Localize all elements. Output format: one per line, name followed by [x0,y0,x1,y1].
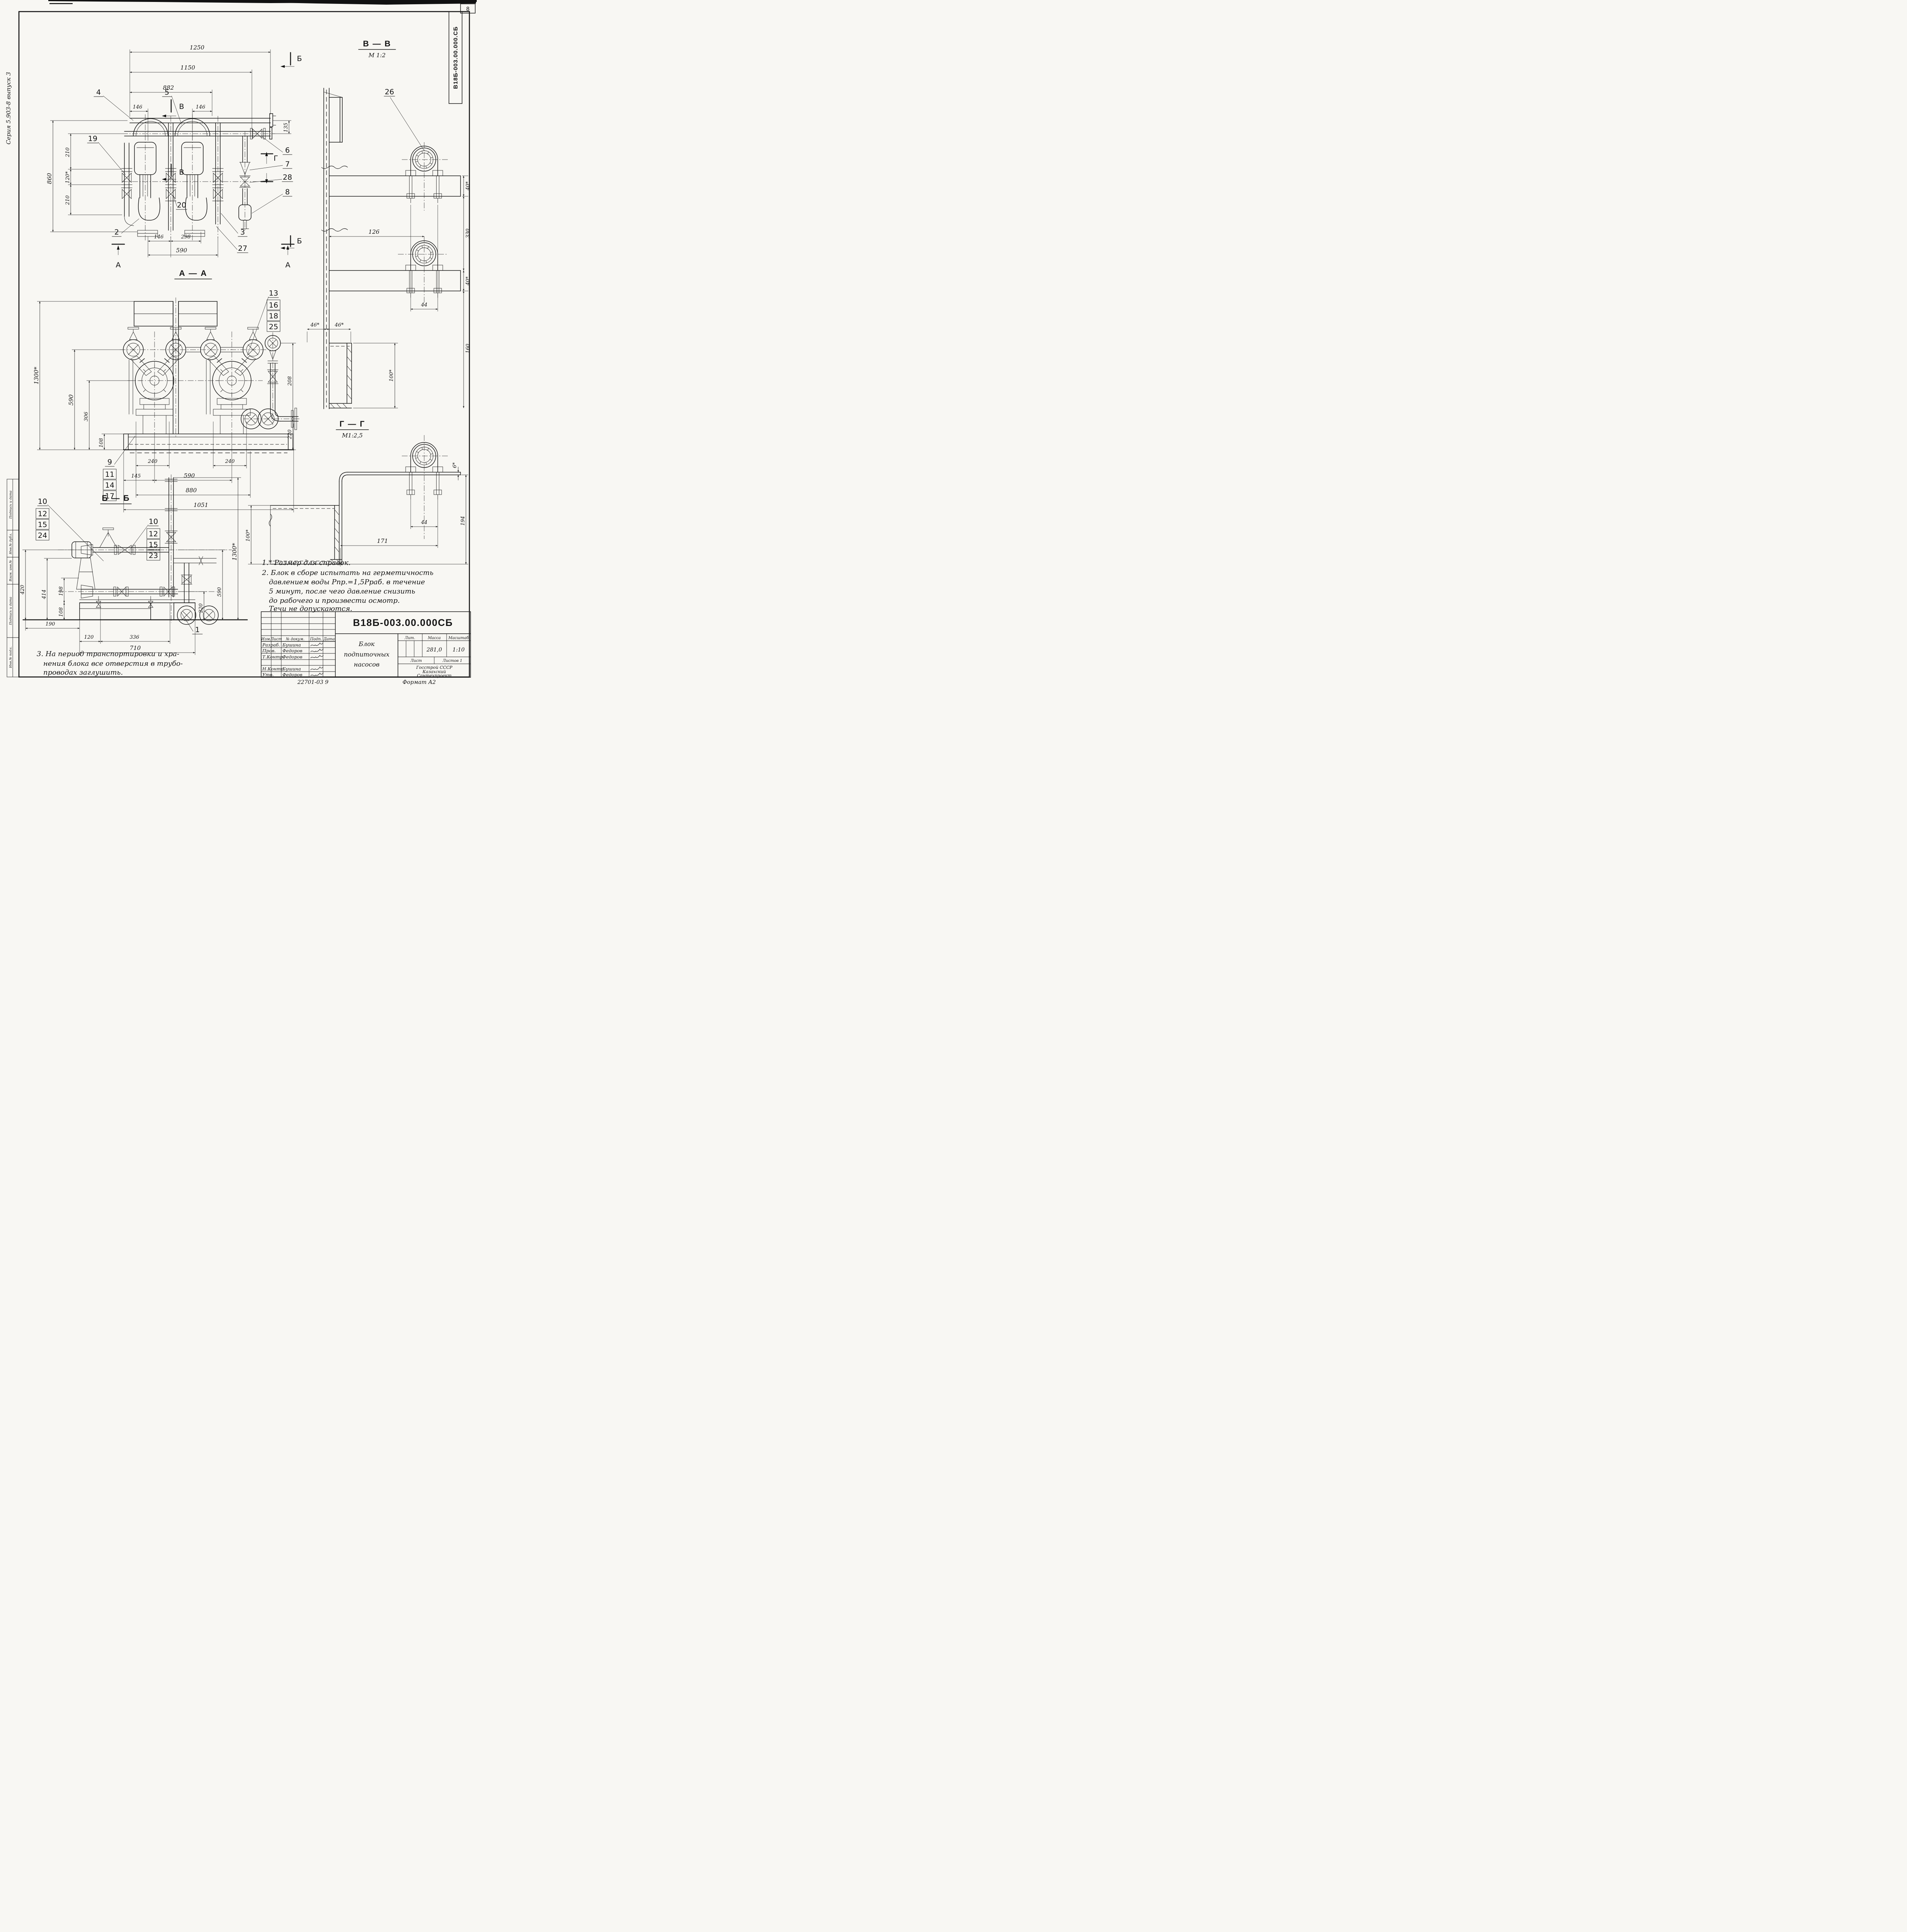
dim-1051: 1051 [194,502,208,509]
callout-7: 7 [285,160,290,168]
org-line3: Сантехпроект [417,673,452,678]
scale-label: Масштаб [448,636,469,640]
bb-title: Б — Б [102,494,130,503]
callout-15a: 15 [38,520,47,529]
dim-146-bottom: 146 [154,234,164,240]
page-number: 8 [466,6,470,12]
dim-44-gg: 44 [421,520,428,526]
callout-10b: 10 [149,517,158,526]
dim-210-bottom: 210 [65,196,71,206]
callout-11: 11 [105,470,114,479]
dim-590-aa: 590 [68,394,75,405]
callout-25: 25 [269,323,278,331]
marker-a-right: А [286,261,291,269]
dim-6: 6* [452,462,458,468]
callout-24: 24 [38,531,47,540]
name-utv: Федоров [282,672,303,677]
margin-field-inv-podl: Инв.№ подл. [9,646,13,668]
dim-108-bb: 108 [58,607,64,617]
dim-146-right: 146 [196,104,206,110]
margin-field-inv-dubl: Инв.№ дубл. [8,533,13,554]
callout-20: 20 [177,201,186,209]
bb-view: Б — Б [20,474,247,655]
dim-240-left: 240 [148,459,158,464]
marker-g: Г [274,154,278,163]
callout-14: 14 [105,481,114,490]
dim-194: 194 [460,516,466,526]
dim-590b-aa: 590 [184,472,195,479]
name-nkontr: Бушина [282,666,301,672]
dim-330: 330 [465,229,471,238]
callout-18: 18 [269,312,278,320]
dim-171: 171 [377,537,388,544]
dim-208: 208 [287,376,293,386]
dim-46-right: 46* [334,322,344,328]
dim-100-vv: 100* [389,369,394,382]
note-3-line1: 3. На период транспортировки и хра- [37,650,179,658]
signatures [311,643,323,676]
vv-view: В — В М 1:2 26 40* 330 [307,39,471,409]
drawing-title-line1: Блок [358,640,375,648]
dim-146-left: 146 [133,104,143,110]
callout-9: 9 [107,458,112,466]
callout-2: 2 [114,228,119,236]
name-razrab: Бушина [282,642,301,648]
dim-160: 160 [465,344,471,354]
bb-callout-stack-left: 10 12 15 24 [36,497,104,561]
dim-336: 336 [130,634,139,640]
aa-title: А — А [179,269,207,278]
dim-40-top: 40* [465,181,471,191]
dim-880: 880 [186,487,197,494]
corner-labels: В18Б-003.00.000.СБ 8 [449,4,475,104]
dim-240-right: 240 [225,459,235,464]
margin-field-podpis-1: Подпись и дата [9,597,13,626]
callout-28: 28 [283,173,292,182]
role-utv: Утв. [262,672,274,677]
dim-210-top: 210 [65,148,71,158]
gg-view: Г — Г М1:2,5 100* 44 171 6* [245,420,468,566]
mass-label: Масса [427,636,440,640]
gg-title: Г — Г [340,420,365,429]
callout-5: 5 [165,88,169,97]
dim-198: 198 [58,587,64,596]
dim-306: 306 [83,412,89,422]
callout-1: 1 [195,626,200,634]
mass-value: 281,0 [426,647,442,653]
front-callouts: 4 5 19 2 20 3 27 6 7 28 8 [87,88,293,253]
callout-26: 26 [385,88,394,96]
section-markers: Б Б В В Г А А [112,53,302,269]
marker-v-top: В [179,102,184,111]
corner-doc-label: В18Б-003.00.000.СБ [452,26,459,89]
dim-40-bottom: 40* [465,276,471,286]
dim-120: 120* [65,171,71,184]
callout-3: 3 [240,228,245,236]
doc-number: В18Б-003.00.000СБ [353,617,453,628]
dim-1300-aa: 1300* [33,367,40,384]
aa-callout-stack-left: 9 11 14 17 [103,436,135,501]
callout-6: 6 [285,146,290,155]
lit-label: Лит. [404,636,415,640]
name-prov: Федоров [282,648,303,653]
dim-126: 126 [369,228,380,235]
gg-scale: М1:2,5 [342,432,363,439]
sheets-label: Листов 1 [442,659,462,663]
callout-19: 19 [88,134,97,143]
vv-scale: М 1:2 [368,52,386,59]
aa-view: А — А [33,269,301,512]
col-izm: Изм. [261,637,271,641]
front-view: 1250 1150 882 146 146 135 860 210 120* 2… [46,44,302,269]
dim-590-front: 590 [176,247,187,254]
callout-8: 8 [285,188,290,196]
dim-860: 860 [46,173,53,184]
role-tkontr: Т.Контр. [262,654,284,660]
note-3-line3: проводах заглушить. [43,668,123,677]
sheet-frame [19,12,469,677]
callout-13: 13 [269,289,278,298]
col-podp: Подп. [310,637,322,641]
dim-220-aa: 220 [287,430,293,440]
col-data: Дата [323,637,335,641]
drawing-canvas: Серия 5.903-8 выпуск 3 Инв.№ подл. Подпи… [0,0,477,689]
marker-a-left: А [116,261,121,269]
dim-135: 135 [283,123,289,133]
note-2-line2: давлением воды Рпр.=1,5Рраб. в течение [269,578,425,586]
dim-44-vv: 44 [421,302,428,308]
scale-value: 1:10 [452,647,465,653]
footer-format: Формат А2 [403,679,436,685]
callout-4: 4 [96,88,101,97]
dim-220-bb: 220 [198,604,204,614]
dim-108-aa: 108 [99,438,104,448]
scan-artifacts [48,0,477,5]
callout-10a: 10 [38,497,47,506]
role-nkontr: Н.Контр [262,666,284,672]
note-1: 1.* Размер для справок. [262,559,351,567]
drawing-sheet: Серия 5.903-8 выпуск 3 Инв.№ подл. Подпи… [0,0,477,689]
dim-420: 420 [20,585,25,595]
callout-27: 27 [238,244,247,253]
dim-145: 145 [131,473,141,479]
note-3-line2: нения блока все отверстия в трубо- [43,660,183,668]
name-tkontr: Федоров [282,654,303,660]
role-prov: Пров. [262,648,276,653]
dim-100-gg: 100* [245,529,251,542]
callout-12b: 12 [149,530,158,538]
marker-b-bottom: Б [297,237,302,245]
dim-1150: 1150 [180,64,195,71]
footer-code: 22701-03 9 [297,679,329,685]
dim-120: 120 [84,634,94,640]
note-2-line4: до рабочего и произвести осмотр. [269,597,400,605]
marker-b-top: Б [297,54,302,63]
callout-15b: 15 [149,541,158,549]
drawing-title-line3: насосов [354,661,380,668]
note-2-line3: 5 минут, после чего давление снизить [269,587,415,595]
series-label: Серия 5.903-8 выпуск 3 [5,72,12,145]
dim-190: 190 [46,621,55,627]
dim-46-left: 46* [310,322,320,328]
sheet-label: Лист [410,659,422,663]
dim-1250: 1250 [190,44,205,51]
col-list: Лист [270,637,282,641]
dim-590-bb: 590 [217,587,223,597]
vv-title: В — В [363,39,391,48]
dim-1300-bb: 1300* [231,543,238,561]
dim-298: 298 [181,234,191,240]
bb-callout-stack-mid: 10 12 15 23 [131,517,160,560]
callout-12a: 12 [38,510,47,518]
riser-left [121,143,134,226]
marker-v-bottom: В [179,168,184,177]
dim-414: 414 [41,590,47,600]
callout-16: 16 [269,301,278,310]
col-dokum: № докум. [286,637,304,641]
margin-field-podpis-2: Подпись и дата [9,491,13,519]
margin-field-vzam: Взам. инв.№ [9,560,13,582]
title-block: Изм. Лист № докум. Подп. Дата Разраб. Бу… [261,612,471,678]
drawing-title-line2: подпиточных [344,651,389,658]
note-2-line1: 2. Блок в сборе испытать на герметичност… [262,569,433,577]
callout-23: 23 [149,551,158,560]
left-margin: Серия 5.903-8 выпуск 3 Инв.№ подл. Подпи… [5,72,19,677]
role-razrab: Разраб. [262,642,280,648]
